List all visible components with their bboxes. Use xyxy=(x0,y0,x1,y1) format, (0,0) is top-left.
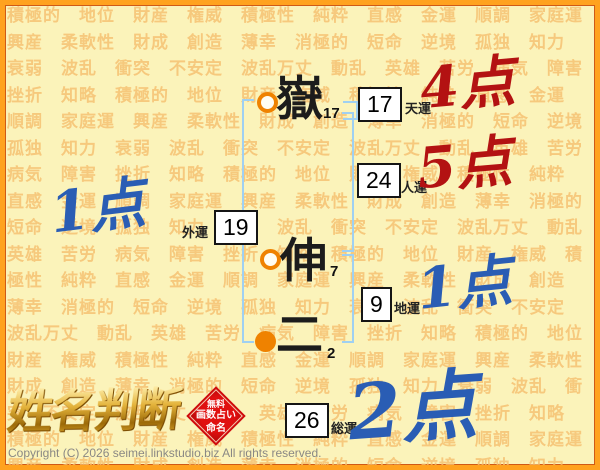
name-character-3: 二 xyxy=(276,311,323,358)
given-marker-circle-1 xyxy=(260,249,281,270)
chiun-bracket xyxy=(342,254,354,343)
copyright-text: Copyright (C) 2026 seimei.linkstudio.biz… xyxy=(8,446,321,460)
chiun-value-box: 9 xyxy=(361,287,392,322)
gaiun-score: 1点 xyxy=(47,174,148,241)
stroke-count-2: 7 xyxy=(330,263,338,280)
jinun-bracket xyxy=(342,112,354,252)
stroke-count-1: 17 xyxy=(323,105,340,122)
name-character-1: 嶽 xyxy=(276,75,323,122)
souun-score: 2点 xyxy=(346,367,480,452)
surname-marker-circle xyxy=(257,92,278,113)
souun-value-box: 26 xyxy=(285,403,329,438)
given-marker-circle-2 xyxy=(255,331,276,352)
content-area: 積極的 地位 財産 権威 積極性 純粋 直感 金運 順調 家庭運 興産 柔軟性 … xyxy=(5,5,595,465)
jinun-value-box: 24 xyxy=(357,163,401,198)
jinun-score: 5点 xyxy=(415,133,514,197)
stroke-count-3: 2 xyxy=(327,345,335,362)
tenun-value-box: 17 xyxy=(358,87,402,122)
seimei-handan-result-page: 積極的 地位 財産 権威 積極性 純粋 直感 金運 順調 家庭運 興産 柔軟性 … xyxy=(0,0,600,470)
gaiun-label: 外運 xyxy=(182,222,208,241)
seimei-handan-logo[interactable]: 姓名判断 xyxy=(5,385,183,437)
chiun-score: 1点 xyxy=(414,252,514,318)
name-character-2: 伸 xyxy=(280,237,327,284)
chiun-label: 地運 xyxy=(394,298,420,317)
gaiun-value-box: 19 xyxy=(214,210,258,245)
tenun-score: 4点 xyxy=(418,53,517,117)
